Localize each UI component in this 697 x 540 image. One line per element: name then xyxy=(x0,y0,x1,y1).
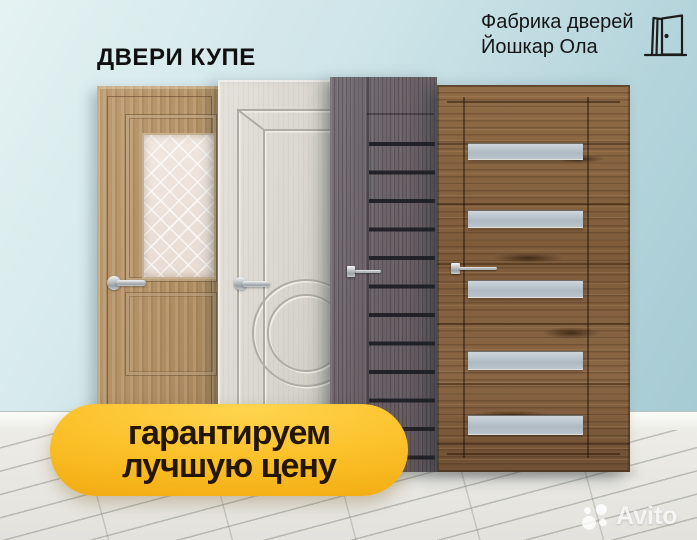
brand-name: Фабрика дверей Йошкар Ола xyxy=(481,10,634,60)
door-oak-diamond-glass xyxy=(97,86,222,420)
avito-watermark-text: Avito xyxy=(616,502,678,531)
brand-line-2: Йошкар Ола xyxy=(481,35,634,60)
door-handle xyxy=(347,266,383,278)
price-guarantee-badge: гарантируем лучшую цену xyxy=(50,404,408,496)
headline-title: ДВЕРИ КУПЕ xyxy=(97,44,256,72)
avito-logo-dots-icon xyxy=(581,503,613,531)
brand-line-1: Фабрика дверей xyxy=(481,10,634,35)
door-frosted-glass-stripe xyxy=(468,210,583,228)
wood-knot xyxy=(542,327,600,339)
door-rustic-oak-glass xyxy=(437,85,630,472)
door-frosted-glass-stripe xyxy=(468,415,583,435)
door-diamond-glass xyxy=(142,133,216,279)
door-frosted-glass-stripe xyxy=(468,143,583,160)
badge-line-1: гарантируем xyxy=(128,417,330,450)
door-frame-line xyxy=(587,97,589,458)
ad-image: ДВЕРИ КУПЕ Фабрика дверей Йошкар Ола гар… xyxy=(0,0,697,540)
wood-knot xyxy=(492,253,564,263)
door-frame-line xyxy=(447,101,620,103)
badge-line-2: лучшую цену xyxy=(122,450,336,483)
door-molding-lines xyxy=(218,80,332,425)
door-white-classic xyxy=(218,80,332,425)
door-rail-line xyxy=(367,113,434,115)
door-handle xyxy=(234,277,278,293)
door-frame-line xyxy=(447,453,620,455)
open-door-icon xyxy=(642,6,688,60)
door-handle xyxy=(451,263,503,275)
door-frosted-glass-stripe xyxy=(468,280,583,298)
door-handle xyxy=(107,276,151,292)
door-frame-line xyxy=(463,97,465,458)
avito-watermark: Avito xyxy=(581,502,678,531)
door-lower-panel xyxy=(125,292,217,376)
door-frosted-glass-stripe xyxy=(468,351,583,370)
